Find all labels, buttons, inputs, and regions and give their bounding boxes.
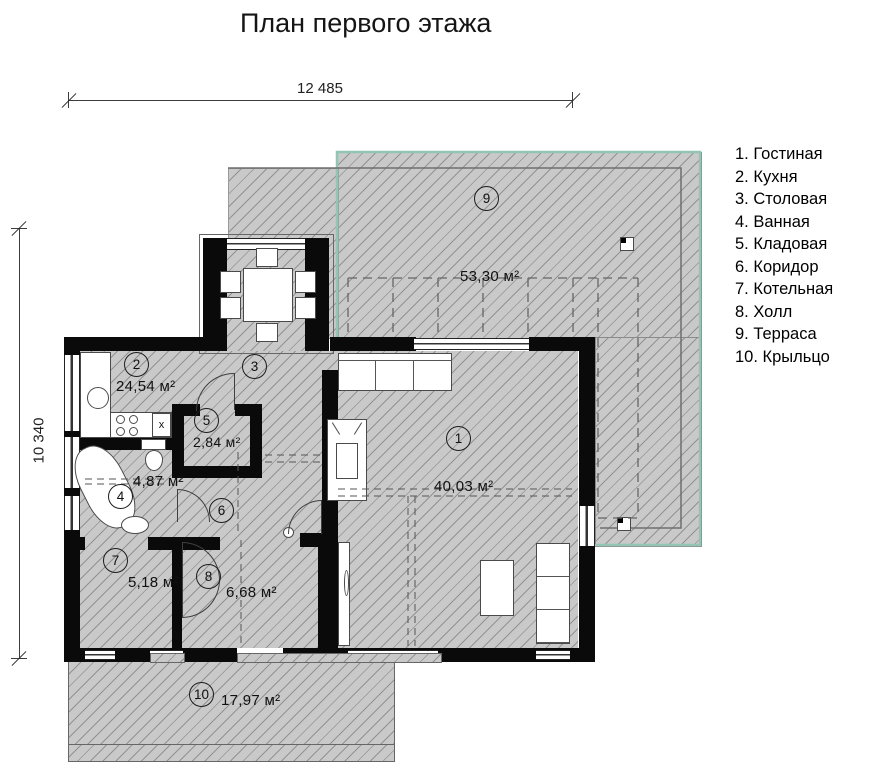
room-circle-bath: 4 <box>108 484 133 509</box>
kitchen-sink <box>87 387 109 409</box>
door-leaf-line <box>177 489 178 522</box>
column-marker-dot <box>618 518 623 523</box>
room-area-boiler: 5,18 м² <box>128 574 179 591</box>
window-boiler-1 <box>85 650 115 660</box>
room-area-terrace: 53,30 м² <box>460 268 519 285</box>
wall-corridor-south-a <box>64 537 85 550</box>
threshold-strip <box>150 653 185 663</box>
window-living-top <box>414 338 531 350</box>
wall-top-living-left <box>330 337 416 351</box>
door-handle <box>344 570 349 596</box>
door-leaf-line <box>321 500 322 534</box>
room-circle-corridor: 6 <box>209 498 234 523</box>
wall-hall-living <box>318 537 338 648</box>
room-circle-hall: 8 <box>196 564 221 589</box>
fireplace-flue <box>336 443 358 479</box>
stove-burner <box>129 427 138 436</box>
dining-chair <box>220 297 241 319</box>
column-marker-dot <box>621 238 626 243</box>
wall-bay-right <box>305 238 329 351</box>
room-circle-storage: 5 <box>194 408 219 433</box>
window-living-bottom-2 <box>536 650 570 660</box>
room-area-hall: 6,68 м² <box>226 584 277 601</box>
window-bath-2 <box>64 496 80 530</box>
sofa-back-line <box>338 360 452 361</box>
dining-chair <box>256 323 278 342</box>
floor-plan-canvas: План первого этажа 12 485 10 340 1. Гост… <box>0 0 869 768</box>
wall-bay-left <box>203 238 227 351</box>
door-leaf-line <box>234 373 235 410</box>
living-door-leaf <box>338 542 350 646</box>
room-circle-kitchen: 2 <box>124 352 149 377</box>
dining-chair <box>295 297 316 319</box>
room-area-kitchen: 24,54 м² <box>116 378 175 395</box>
room-area-storage: 2,84 м² <box>193 434 241 450</box>
toilet-tank <box>141 439 166 450</box>
door-leaf-line <box>182 542 183 618</box>
coffee-table <box>480 560 514 616</box>
stove-burner <box>116 427 125 436</box>
room-circle-living: 1 <box>446 426 471 451</box>
room-circle-boiler: 7 <box>103 548 128 573</box>
window-kitchen <box>64 355 80 431</box>
window-living-right <box>579 506 595 546</box>
dining-table <box>243 268 293 322</box>
wall-storage-bottom <box>172 466 262 478</box>
dining-chair <box>220 271 241 293</box>
dining-chair <box>256 248 278 267</box>
cabinet <box>536 543 570 644</box>
room-area-bath: 4,87 м² <box>133 473 184 490</box>
room-circle-porch: 10 <box>189 682 214 707</box>
sofa-divider <box>375 360 376 391</box>
wall-top-kitchen <box>64 337 205 351</box>
stove-burner <box>129 415 138 424</box>
room-circle-terrace: 9 <box>474 186 499 211</box>
room-circle-dining: 3 <box>242 354 267 379</box>
dishwasher-mark: x <box>152 413 171 437</box>
bath-sink <box>121 516 149 534</box>
wall-right <box>579 337 595 662</box>
dining-chair <box>295 271 316 293</box>
room-area-porch: 17,97 м² <box>221 692 280 709</box>
threshold-strip <box>237 653 442 663</box>
sofa <box>338 353 452 391</box>
sofa-divider <box>413 360 414 391</box>
stove-burner <box>116 415 125 424</box>
wall-boiler-hall <box>172 537 182 648</box>
room-area-living: 40,03 м² <box>434 478 493 495</box>
